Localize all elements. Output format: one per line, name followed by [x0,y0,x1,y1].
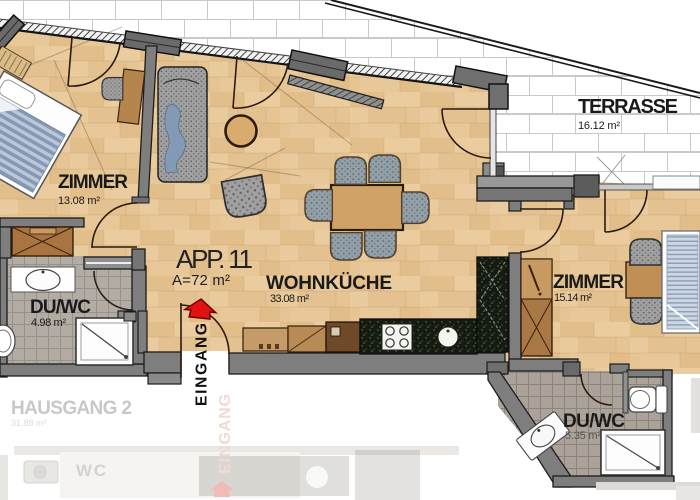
svg-text:16.12 m²: 16.12 m² [578,120,620,132]
svg-text:ZIMMER: ZIMMER [58,172,128,193]
svg-text:5.35 m²: 5.35 m² [565,430,601,442]
svg-text:31.88 m²: 31.88 m² [11,418,47,428]
svg-text:DU/WC: DU/WC [563,411,625,432]
svg-text:WC: WC [76,461,106,480]
svg-text:DU/WC: DU/WC [30,297,91,318]
svg-text:4.98 m²: 4.98 m² [31,317,66,329]
svg-text:EINGANG: EINGANG [217,394,234,474]
svg-text:WOHNKÜCHE: WOHNKÜCHE [266,273,392,294]
svg-text:15.14 m²: 15.14 m² [554,292,592,304]
svg-text:ZIMMER: ZIMMER [553,272,624,293]
svg-text:HAUSGANG 2: HAUSGANG 2 [11,398,132,419]
svg-text:APP. 11: APP. 11 [176,244,253,274]
svg-text:TERRASSE: TERRASSE [578,96,678,118]
svg-text:33.08 m²: 33.08 m² [270,293,309,305]
svg-text:EINGANG: EINGANG [194,323,211,406]
svg-text:A=72 m²: A=72 m² [172,272,230,289]
svg-text:13.08 m²: 13.08 m² [58,195,100,207]
